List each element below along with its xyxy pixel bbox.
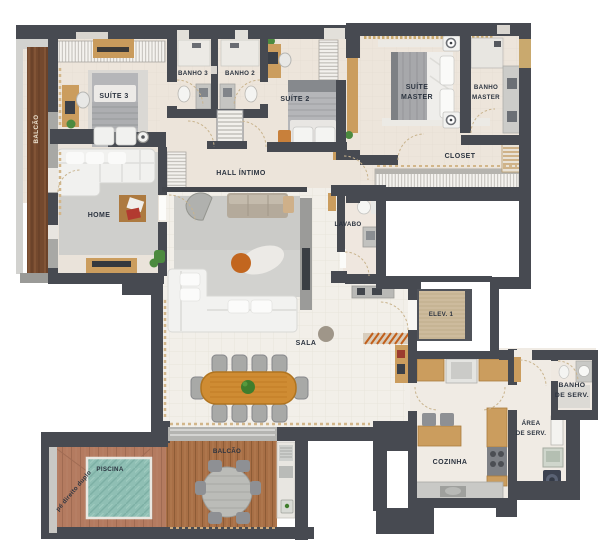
svg-text:BALCÃO: BALCÃO [213, 448, 241, 455]
svg-text:BANHO 2: BANHO 2 [225, 70, 255, 77]
svg-text:CLOSET: CLOSET [445, 153, 476, 160]
svg-text:SALA: SALA [296, 340, 317, 347]
svg-text:LAVABO: LAVABO [334, 221, 361, 228]
svg-text:BALCÃO: BALCÃO [33, 115, 40, 144]
svg-text:PISCINA: PISCINA [96, 466, 123, 473]
svg-text:COZINHA: COZINHA [433, 459, 468, 466]
svg-text:DE SERV.: DE SERV. [516, 430, 547, 437]
svg-text:MASTER: MASTER [401, 94, 433, 101]
svg-text:SUÍTE 3: SUÍTE 3 [99, 91, 128, 100]
svg-text:MASTER: MASTER [472, 94, 500, 101]
svg-text:ELEV. 1: ELEV. 1 [429, 311, 454, 318]
svg-text:HALL ÍNTIMO: HALL ÍNTIMO [216, 168, 266, 177]
svg-text:DE SERV.: DE SERV. [555, 392, 589, 399]
svg-text:BANHO 3: BANHO 3 [178, 70, 208, 77]
svg-text:BANHO: BANHO [474, 84, 498, 91]
svg-text:HOME: HOME [88, 212, 111, 219]
svg-text:ÁREA: ÁREA [522, 420, 541, 427]
svg-text:BANHO: BANHO [559, 382, 586, 389]
svg-text:SUÍTE 2: SUÍTE 2 [280, 94, 309, 103]
svg-text:SUÍTE: SUÍTE [406, 82, 429, 91]
